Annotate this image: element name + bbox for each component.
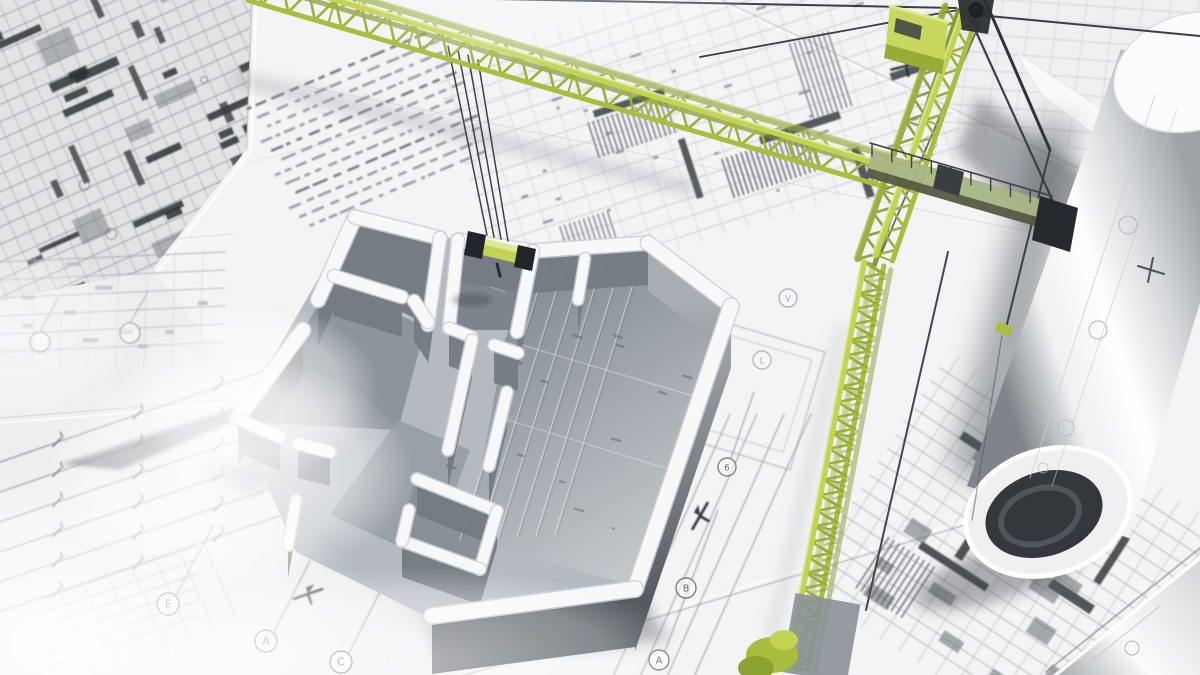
grid-bubble-letter: L <box>760 357 765 367</box>
render-canvas: EACGBA6VL <box>0 0 1200 675</box>
grid-bubble-letter: V <box>785 295 791 305</box>
grid-bubble-letter: 6 <box>724 464 729 474</box>
grid-bubble-letter: B <box>683 584 690 595</box>
architectural-blueprint-render: EACGBA6VL <box>0 0 1200 675</box>
